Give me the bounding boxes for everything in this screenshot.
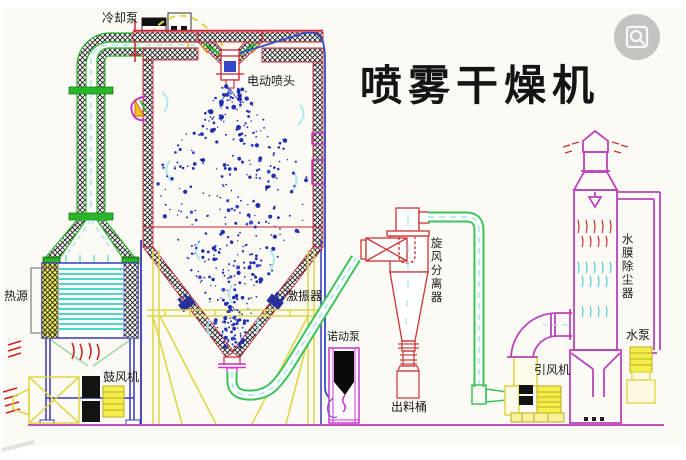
label-cyclone-separator: 旋风分离器 xyxy=(430,237,443,305)
label-cooling-pump: 冷却泵 xyxy=(102,12,138,25)
label-heat-source: 热源 xyxy=(4,290,28,303)
label-water-pump: 水泵 xyxy=(626,329,650,342)
label-peristaltic-pump: 诺动泵 xyxy=(327,331,360,343)
magnifier-square-glyph xyxy=(614,14,660,60)
label-vibrator: 激振器 xyxy=(286,290,322,303)
elbow-duct xyxy=(507,309,572,357)
ground-line xyxy=(2,425,664,450)
diagram-title: 喷雾干燥机 xyxy=(360,52,600,113)
spray-particles xyxy=(156,84,307,348)
label-blower: 鼓风机 xyxy=(103,371,139,384)
label-discharge-barrel: 出料桶 xyxy=(391,401,427,414)
image-search-icon[interactable] xyxy=(614,14,660,60)
label-induced-draft-fan: 引风机 xyxy=(534,364,570,377)
heat-dashes xyxy=(3,341,21,413)
spray-dryer-diagram: 喷雾干燥机 冷却泵 电动喷头 热源 鼓风机 激振器 诺动泵 出料桶 旋风分离器 … xyxy=(0,0,686,460)
label-spray-head: 电动喷头 xyxy=(247,75,295,88)
water-pump xyxy=(627,347,655,403)
peristaltic-pump xyxy=(328,348,359,423)
discharge-barrel xyxy=(397,344,419,398)
cyclone-separator xyxy=(361,208,429,351)
label-dust-remover: 水膜除尘器 xyxy=(621,233,634,301)
hot-air-pipe xyxy=(43,33,200,264)
